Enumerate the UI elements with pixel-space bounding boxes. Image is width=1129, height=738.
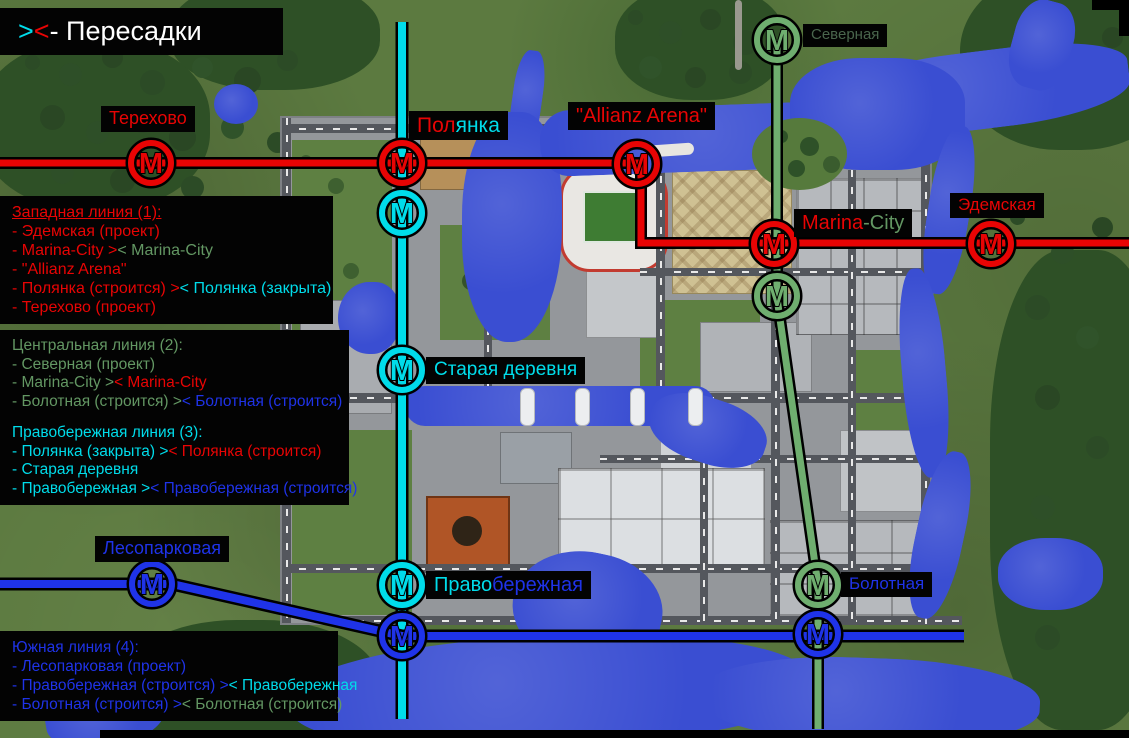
- station-label-staraya-derevnya: Старая деревня: [426, 357, 585, 384]
- legend-row: - Эдемская (проект): [12, 222, 321, 241]
- legend-row: - Терехово (проект): [12, 298, 321, 317]
- legend-text-segment: - Эдемская (проект): [12, 223, 160, 240]
- legend-row: - Болотная (строится) >< Болотная (строи…: [12, 695, 326, 714]
- metro-m-letter: М: [765, 25, 789, 57]
- metro-m-letter: М: [979, 229, 1003, 261]
- legend-west-title: Западная линия (1):: [12, 203, 321, 222]
- legend-title-transfers: >< - Пересадки: [0, 8, 283, 55]
- legend-text-segment: - Болотная (строится) >: [12, 696, 182, 713]
- legend-text-segment: - Marina-City >: [12, 242, 117, 259]
- station-label-text: Право: [434, 574, 492, 596]
- legend-right-bank-title: Правобережная линия (3):: [12, 424, 337, 443]
- station-label-text: Болотная: [849, 574, 924, 593]
- station-label-marina-city: Marina-City: [794, 209, 912, 237]
- legend-text-segment: - "Allianz Arena": [12, 261, 127, 278]
- station-label-lesoparkovaya: Лесопарковая: [95, 536, 229, 562]
- metro-m-letter: М: [765, 281, 789, 313]
- legend-central-and-right-bank: Центральная линия (2): - Северная (проек…: [0, 330, 349, 505]
- legend-text-segment: - Болотная (строится) >: [12, 393, 182, 410]
- station-label-text: -City: [863, 212, 904, 234]
- legend-text-segment: - Полянка (строится) >: [12, 280, 180, 297]
- station-marker-polyanka-cyan: М: [382, 193, 422, 233]
- legend-row: - Северная (проект): [12, 356, 337, 375]
- legend-south-title: Южная линия (4):: [12, 638, 326, 657]
- legend-spacer: [12, 411, 337, 424]
- metro-m-letter: М: [390, 355, 414, 387]
- legend-row: - Правобережная (строится) >< Правобереж…: [12, 676, 326, 695]
- metro-m-letter: М: [806, 570, 830, 602]
- legend-south-line: Южная линия (4): - Лесопарковая (проект)…: [0, 631, 338, 721]
- metro-m-letter: М: [390, 198, 414, 230]
- legend-row: - Болотная (строится) >< Болотная (строи…: [12, 393, 337, 412]
- legend-text-segment: < Полянка (строится): [168, 443, 321, 460]
- legend-row: - "Allianz Arena": [12, 260, 321, 279]
- station-label-severnaya: Северная: [803, 24, 887, 47]
- transfer-arrow-right: >: [18, 16, 34, 47]
- metro-m-letter: М: [139, 148, 163, 180]
- transfers-label: - Пересадки: [50, 16, 202, 47]
- station-label-terehovo: Терехово: [101, 106, 195, 132]
- metro-m-letter: М: [762, 229, 786, 261]
- legend-text-segment: < Болотная (строится): [182, 393, 342, 410]
- station-label-bolotnaya: Болотная: [841, 572, 932, 597]
- legend-text-segment: < Полянка (закрыта): [180, 280, 332, 297]
- station-marker-severnaya: М: [757, 20, 797, 60]
- station-label-text: бережная: [492, 574, 583, 596]
- station-label-allianz-arena: "Allianz Arena": [568, 102, 715, 130]
- legend-text-segment: - Старая деревня: [12, 461, 138, 478]
- station-marker-pravoberezhnaya-cyan: М: [382, 565, 422, 605]
- legend-text-segment: - Лесопарковая (проект): [12, 658, 186, 675]
- minecraft-metro-map-screenshot: М М М М М М М М М М М М М М Терехово Пол…: [0, 0, 1129, 738]
- legend-text-segment: - Правобережная (строится) >: [12, 677, 229, 694]
- station-label-text: Пол: [417, 114, 456, 137]
- legend-text-segment: - Терехово (проект): [12, 299, 156, 316]
- legend-text-segment: - Северная (проект): [12, 356, 155, 373]
- station-marker-staraya-derevnya: М: [382, 350, 422, 390]
- legend-text-segment: - Marina-City >: [12, 374, 114, 391]
- legend-row: - Правобережная >< Правобережная (строит…: [12, 480, 337, 499]
- legend-text-segment: < Правобережная (строится): [150, 480, 357, 497]
- station-label-pravoberezhnaya: Правобережная: [426, 571, 591, 599]
- legend-row: - Полянка (закрыта) >< Полянка (строится…: [12, 443, 337, 462]
- legend-text-segment: < Болотная (строится): [182, 696, 342, 713]
- legend-text-segment: < Marina-City: [117, 242, 213, 259]
- metro-m-letter: М: [390, 621, 414, 653]
- metro-m-letter: М: [140, 569, 164, 601]
- metro-m-letter: М: [806, 619, 830, 651]
- legend-row: - Marina-City >< Marina-City: [12, 241, 321, 260]
- metro-m-letter: М: [390, 570, 414, 602]
- metro-m-letter: М: [625, 149, 649, 181]
- legend-text-segment: - Правобережная >: [12, 480, 150, 497]
- station-label-text: янка: [456, 114, 500, 137]
- station-label-polyanka: Полянка: [409, 111, 508, 140]
- legend-row: - Старая деревня: [12, 461, 337, 480]
- station-label-edemskaya: Эдемская: [950, 193, 1044, 218]
- legend-row: - Полянка (строится) >< Полянка (закрыта…: [12, 279, 321, 298]
- station-label-text: "Allianz Arena": [576, 105, 707, 127]
- station-label-text: Северная: [811, 26, 879, 43]
- legend-row: - Marina-City >< Marina-City: [12, 374, 337, 393]
- legend-central-title: Центральная линия (2):: [12, 337, 337, 356]
- legend-text-segment: - Полянка (закрыта) >: [12, 443, 168, 460]
- legend-text-segment: < Marina-City: [114, 374, 207, 391]
- legend-text-segment: < Правобережная: [229, 677, 358, 694]
- station-label-text: Лесопарковая: [103, 538, 221, 558]
- station-label-text: Терехово: [109, 108, 187, 128]
- legend-west-line: Западная линия (1): - Эдемская (проект) …: [0, 196, 333, 324]
- legend-row: - Лесопарковая (проект): [12, 657, 326, 676]
- station-label-text: Старая деревня: [434, 359, 577, 380]
- transfer-arrow-left: <: [34, 16, 50, 47]
- station-marker-marina-city-green: М: [757, 276, 797, 316]
- station-label-text: Эдемская: [958, 195, 1036, 214]
- station-marker-bolotnaya-green: М: [798, 565, 838, 605]
- station-label-text: Marina: [802, 212, 863, 234]
- metro-m-letter: М: [390, 148, 414, 180]
